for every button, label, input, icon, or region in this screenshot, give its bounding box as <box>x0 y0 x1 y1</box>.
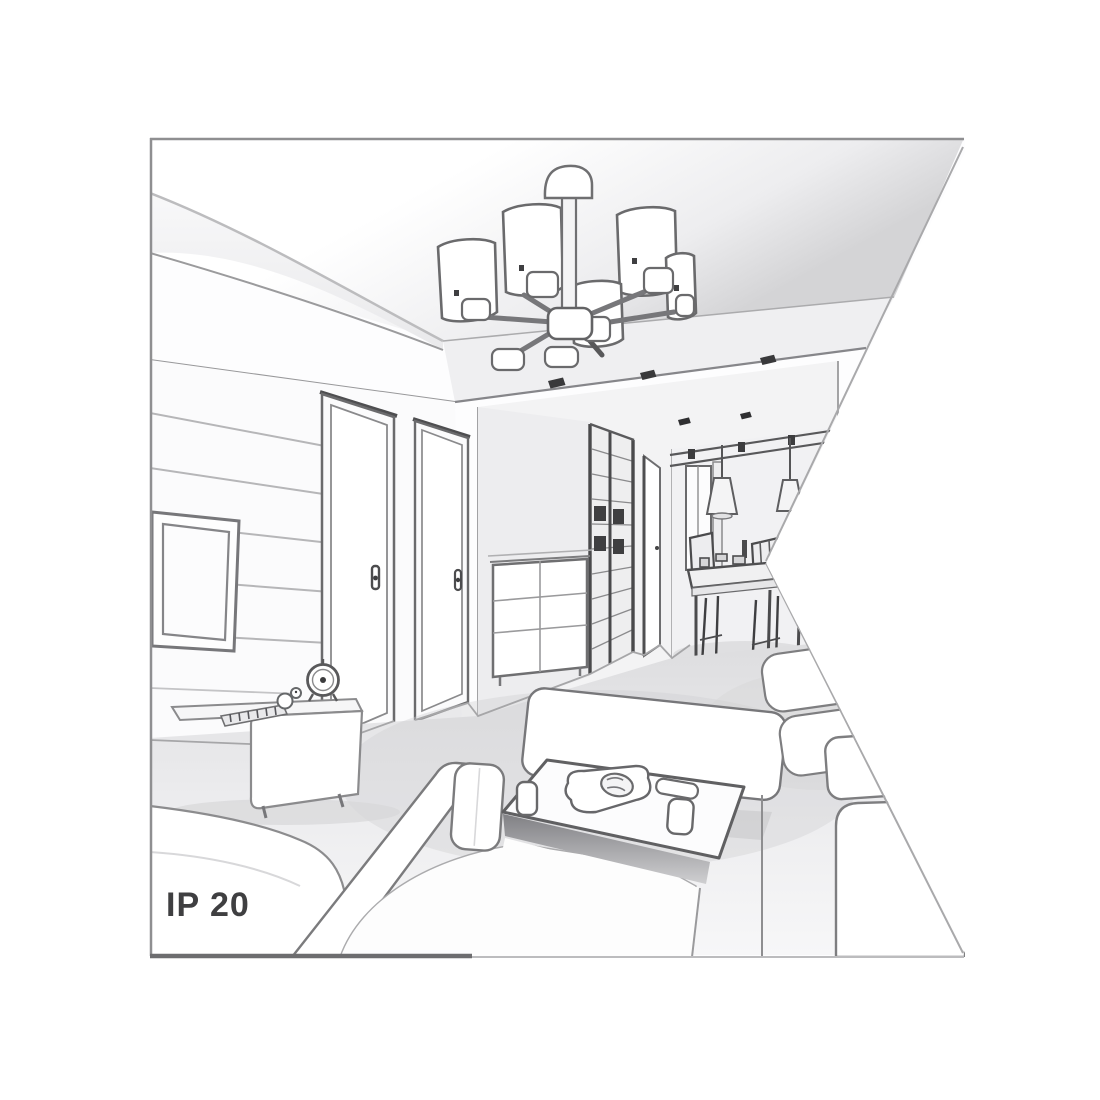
cup-right <box>667 798 694 835</box>
shade-dot <box>519 265 524 271</box>
socket <box>676 295 694 316</box>
table-item <box>716 554 727 561</box>
hall-door-handle <box>655 546 659 550</box>
socket <box>527 272 558 297</box>
shade-dot <box>674 285 679 291</box>
ip-rating-label: IP 20 <box>166 886 250 924</box>
wardrobe-panel <box>594 506 606 521</box>
hall-door-leaf <box>644 456 660 656</box>
ceiling-canopy <box>545 166 592 198</box>
clock-center <box>320 677 326 683</box>
door2-keyhole <box>456 578 460 582</box>
beam-spot <box>688 449 695 459</box>
beam-spot <box>738 442 745 452</box>
product-illustration: IP 20 <box>0 0 1100 1100</box>
shade-dot <box>632 258 637 264</box>
wardrobe-panel <box>594 536 606 551</box>
socket <box>492 349 524 370</box>
wardrobe-panel <box>613 539 624 554</box>
pendant-bulb-1 <box>712 513 732 519</box>
cup-left <box>517 782 537 815</box>
table-item <box>700 558 709 567</box>
scene-svg: IP 20 <box>0 0 1100 1100</box>
duck-figurine-body <box>278 694 293 709</box>
socket <box>644 268 673 293</box>
duck-eye <box>295 691 297 693</box>
wall-tv-inner-frame <box>163 524 229 640</box>
socket <box>462 299 490 320</box>
chandelier-rod <box>562 190 576 316</box>
tv-stand-front <box>251 711 362 808</box>
door1-keyhole <box>373 576 378 581</box>
shade-dot <box>454 290 459 296</box>
table-item <box>733 556 745 564</box>
wardrobe-panel <box>613 509 624 524</box>
chandelier-hub <box>548 308 592 339</box>
socket <box>545 347 578 367</box>
